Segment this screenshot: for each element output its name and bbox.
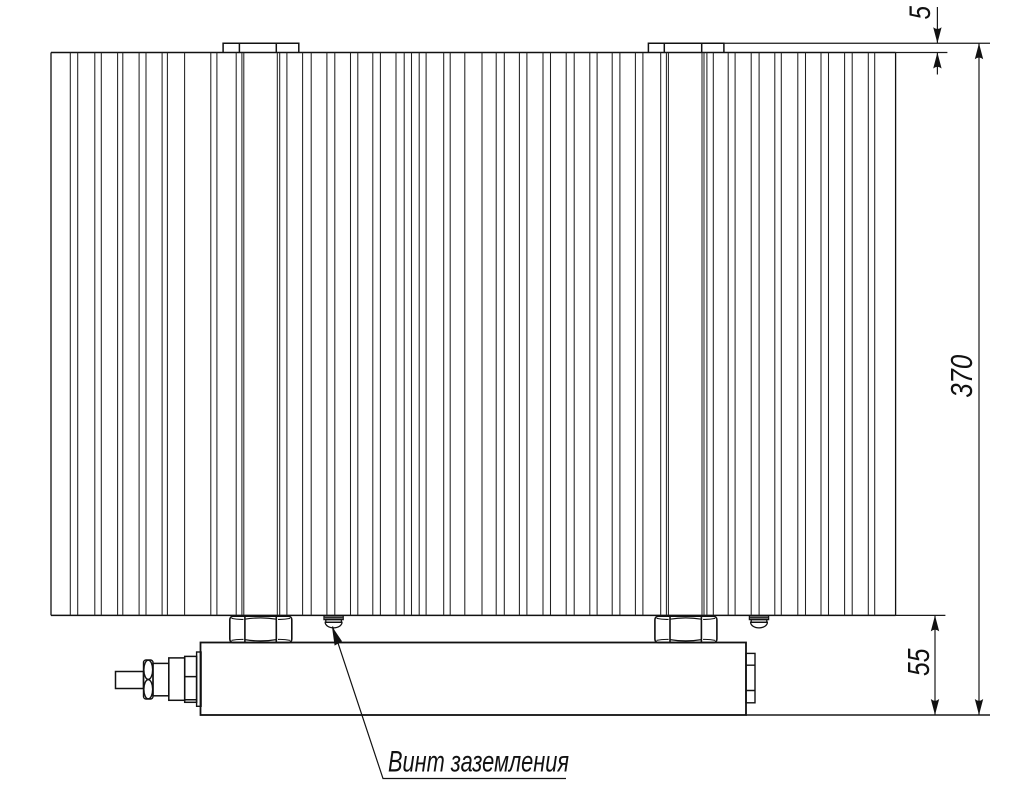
svg-text:55: 55 bbox=[901, 648, 936, 676]
svg-text:5: 5 bbox=[904, 6, 937, 20]
svg-text:370: 370 bbox=[944, 355, 979, 398]
svg-text:Винт заземления: Винт заземления bbox=[388, 746, 569, 779]
